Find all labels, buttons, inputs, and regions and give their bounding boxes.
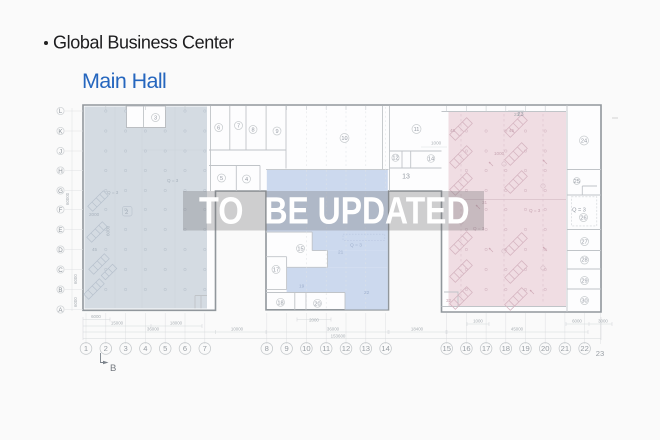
svg-text:11: 11 [322,344,330,353]
svg-text:J: J [59,148,62,155]
svg-text:21: 21 [338,250,344,256]
svg-text:6000: 6000 [73,274,78,284]
svg-text:45000: 45000 [511,327,524,332]
svg-text:Q = 3: Q = 3 [107,190,119,195]
svg-text:2000: 2000 [89,212,100,217]
svg-text:45: 45 [92,247,98,252]
svg-text:3: 3 [123,344,127,353]
svg-text:2000: 2000 [309,318,319,323]
svg-text:6: 6 [217,126,220,132]
svg-text:45: 45 [450,128,456,133]
svg-text:16: 16 [462,344,470,353]
svg-text:19: 19 [299,284,305,290]
svg-text:C: C [58,267,63,274]
svg-text:6000: 6000 [106,225,111,236]
svg-text:6000: 6000 [91,314,101,319]
svg-text:153600: 153600 [331,334,346,339]
svg-text:Q = 3: Q = 3 [572,208,586,214]
svg-text:D: D [58,247,63,254]
svg-text:F: F [59,207,63,214]
svg-text:24: 24 [581,139,587,145]
svg-text:TO: TO [199,191,244,233]
svg-text:28: 28 [581,258,587,264]
svg-text:5: 5 [163,344,167,353]
svg-text:8: 8 [265,344,269,353]
svg-text:B: B [110,363,116,374]
svg-text:22: 22 [364,290,370,296]
svg-text:18400: 18400 [411,327,424,332]
svg-text:7: 7 [237,124,240,130]
svg-text:11: 11 [414,127,420,133]
svg-text:Main Hall: Main Hall [82,69,166,93]
svg-text:13: 13 [402,174,410,181]
svg-text:1000: 1000 [494,151,505,156]
svg-text:Q = 3: Q = 3 [350,243,362,249]
svg-text:Q = 3: Q = 3 [529,208,541,213]
svg-text:3: 3 [154,116,157,122]
svg-text:BE UPDATED: BE UPDATED [265,191,470,233]
svg-text:20: 20 [314,301,320,307]
svg-text:17: 17 [482,344,490,353]
svg-text:13: 13 [362,344,370,353]
svg-text:L: L [59,108,63,115]
svg-text:12: 12 [342,344,350,353]
svg-text:15000: 15000 [111,321,124,326]
svg-text:10000: 10000 [231,327,244,332]
svg-text:3000: 3000 [598,319,608,324]
svg-text:5: 5 [220,176,223,182]
svg-text:30: 30 [581,299,587,305]
svg-text:27: 27 [581,240,587,246]
svg-text:1000: 1000 [473,319,483,324]
svg-text:7: 7 [203,344,207,353]
svg-text:26: 26 [580,216,586,222]
svg-text:18: 18 [277,300,283,306]
svg-text:6000: 6000 [73,297,78,307]
svg-text:10: 10 [341,136,347,142]
svg-text:19: 19 [521,344,529,353]
svg-text:29: 29 [581,279,587,285]
svg-text:Q = 3: Q = 3 [167,178,179,183]
svg-text:17: 17 [273,267,279,273]
svg-text:15: 15 [297,247,303,253]
svg-text:9: 9 [275,129,278,135]
svg-text:60000: 60000 [65,192,70,205]
svg-text:14: 14 [428,157,434,163]
svg-text:9: 9 [284,344,288,353]
svg-text:25: 25 [574,179,580,185]
svg-text:8: 8 [251,128,254,134]
svg-text:10: 10 [302,344,310,353]
svg-text:21: 21 [561,344,569,353]
svg-text:18: 18 [502,344,510,353]
svg-text:23: 23 [514,112,520,118]
svg-text:36000: 36000 [327,327,340,332]
svg-text:22: 22 [580,344,588,353]
svg-text:E: E [58,227,62,234]
svg-text:20: 20 [541,344,549,353]
svg-text:15: 15 [442,344,450,353]
svg-text:14: 14 [381,344,389,353]
svg-text:45: 45 [509,128,515,133]
svg-text:H: H [58,168,62,175]
svg-text:6000: 6000 [572,319,582,324]
svg-text:36000: 36000 [147,327,160,332]
svg-text:1000: 1000 [431,141,442,146]
svg-text:23: 23 [596,349,604,358]
svg-text:4: 4 [245,177,248,183]
svg-text:B: B [58,287,62,294]
svg-text:6: 6 [183,344,187,353]
svg-text:Global Business Center: Global Business Center [53,33,234,53]
svg-text:4: 4 [143,344,147,353]
svg-text:2: 2 [104,344,108,353]
svg-text:18000: 18000 [170,321,183,326]
svg-text:G: G [58,188,63,195]
svg-text:12: 12 [392,156,398,162]
svg-text:32: 32 [446,298,452,303]
svg-text:1: 1 [84,344,88,353]
